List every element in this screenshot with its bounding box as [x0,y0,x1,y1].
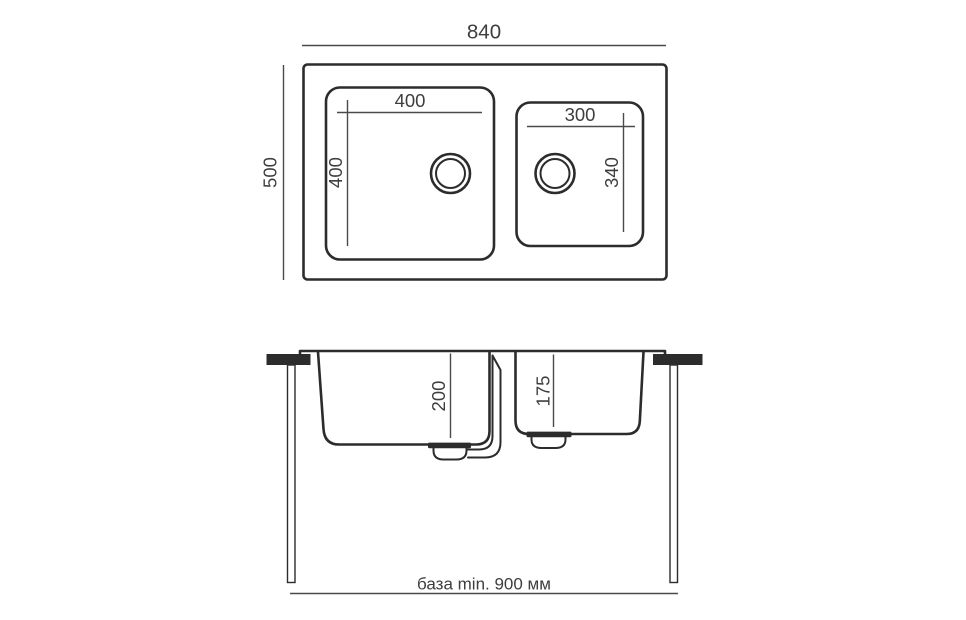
second-drain-inner-ring [541,159,570,188]
dim-main-bowl-width-label: 400 [395,90,426,111]
sink-section-view: 200 175 база min. 900 мм [267,351,703,594]
second-bowl-drain-icon [536,154,575,193]
countertop-left-block [267,354,311,365]
dim-second-bowl-height: 175 [533,355,554,428]
cabinet-left-panel [288,365,296,583]
base-cabinet-note: база min. 900 мм [290,575,678,594]
main-drain-inner-ring [436,159,465,188]
drawing-canvas: 840 500 400 400 300 [0,0,966,620]
dim-overall-width-label: 840 [467,21,501,44]
dim-main-bowl-depth-label: 400 [325,157,346,188]
countertop-right-block [653,354,703,365]
dim-second-bowl-depth: 340 [601,113,624,232]
second-bowl-drain-fitting [527,432,572,448]
cabinet-right-panel [670,365,678,583]
base-cabinet-note-label: база min. 900 мм [417,575,551,594]
dim-second-bowl-depth-label: 340 [601,157,622,188]
dim-second-bowl-height-label: 175 [533,376,554,407]
section-main-bowl [318,352,490,445]
dim-second-bowl-width: 300 [527,104,635,127]
main-bowl-drain-fitting [428,443,471,460]
main-bowl-drain-icon [431,154,470,193]
dim-main-bowl-depth: 400 [325,100,348,246]
dim-overall-depth-label: 500 [260,157,281,188]
sink-technical-drawing: 840 500 400 400 300 [0,0,966,620]
sink-plan-view: 840 500 400 400 300 [260,21,667,281]
main-drain-flange [428,443,471,449]
dim-main-bowl-height: 200 [428,354,451,439]
dim-overall-depth: 500 [260,65,284,280]
second-drain-cup [532,437,566,448]
dim-main-bowl-width: 400 [337,90,482,113]
section-sink-rim [300,351,665,356]
dim-second-bowl-width-label: 300 [565,104,596,125]
dim-overall-width: 840 [302,21,666,46]
dim-main-bowl-height-label: 200 [428,381,449,412]
main-drain-cup [434,448,467,460]
